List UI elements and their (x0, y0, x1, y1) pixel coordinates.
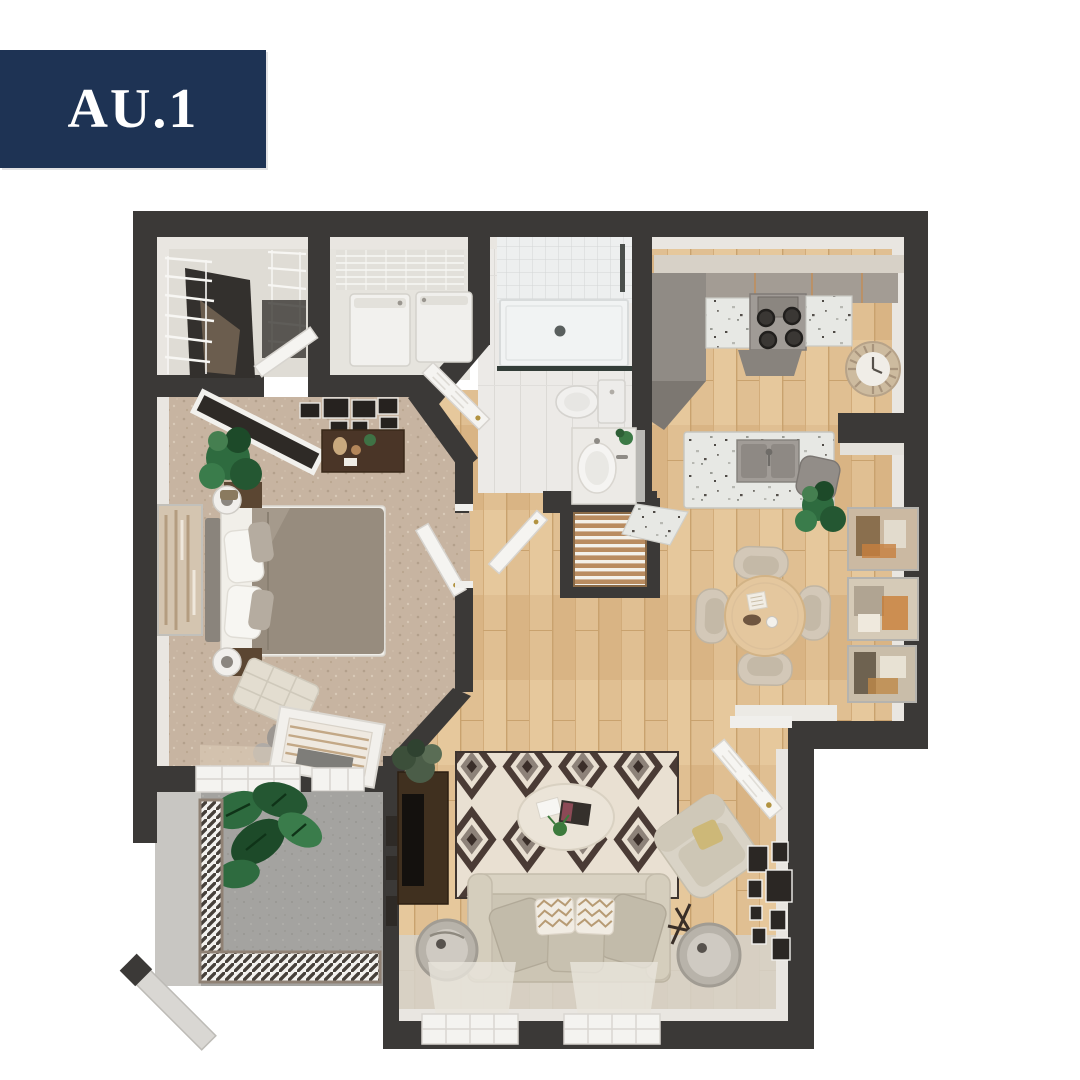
table-plant (553, 822, 567, 836)
floorplan-image (0, 0, 1080, 1080)
living-left-frames (386, 816, 397, 926)
dining-wall-art (848, 508, 918, 702)
wall-left (133, 211, 157, 843)
shower-tile-wall (497, 237, 632, 303)
shower-glass-door (497, 366, 632, 371)
counter-left (706, 298, 750, 348)
toilet-tank (598, 380, 625, 423)
bed (205, 506, 385, 656)
floorplan-page: AU.1 (0, 0, 1080, 1080)
wall-top (133, 211, 928, 237)
tv (402, 794, 424, 886)
table-napkin (747, 592, 768, 611)
patio-ledge (155, 790, 201, 986)
chevron-pillow (535, 897, 575, 936)
faucet (616, 455, 628, 459)
dining-table (725, 576, 805, 656)
shower-drain (555, 326, 566, 337)
fridge-cabinet (652, 273, 706, 381)
patio-railing-bottom (200, 952, 380, 982)
vanity-mirror (636, 430, 645, 502)
table-centerpiece (743, 615, 761, 626)
chevron-pillow (575, 897, 615, 935)
dresser-plant (364, 434, 376, 446)
shower-head (620, 244, 625, 292)
oven-front (738, 350, 802, 376)
wall-clock (846, 342, 900, 396)
soffit (654, 255, 904, 273)
headboard (205, 518, 221, 642)
counter-right (806, 296, 852, 346)
